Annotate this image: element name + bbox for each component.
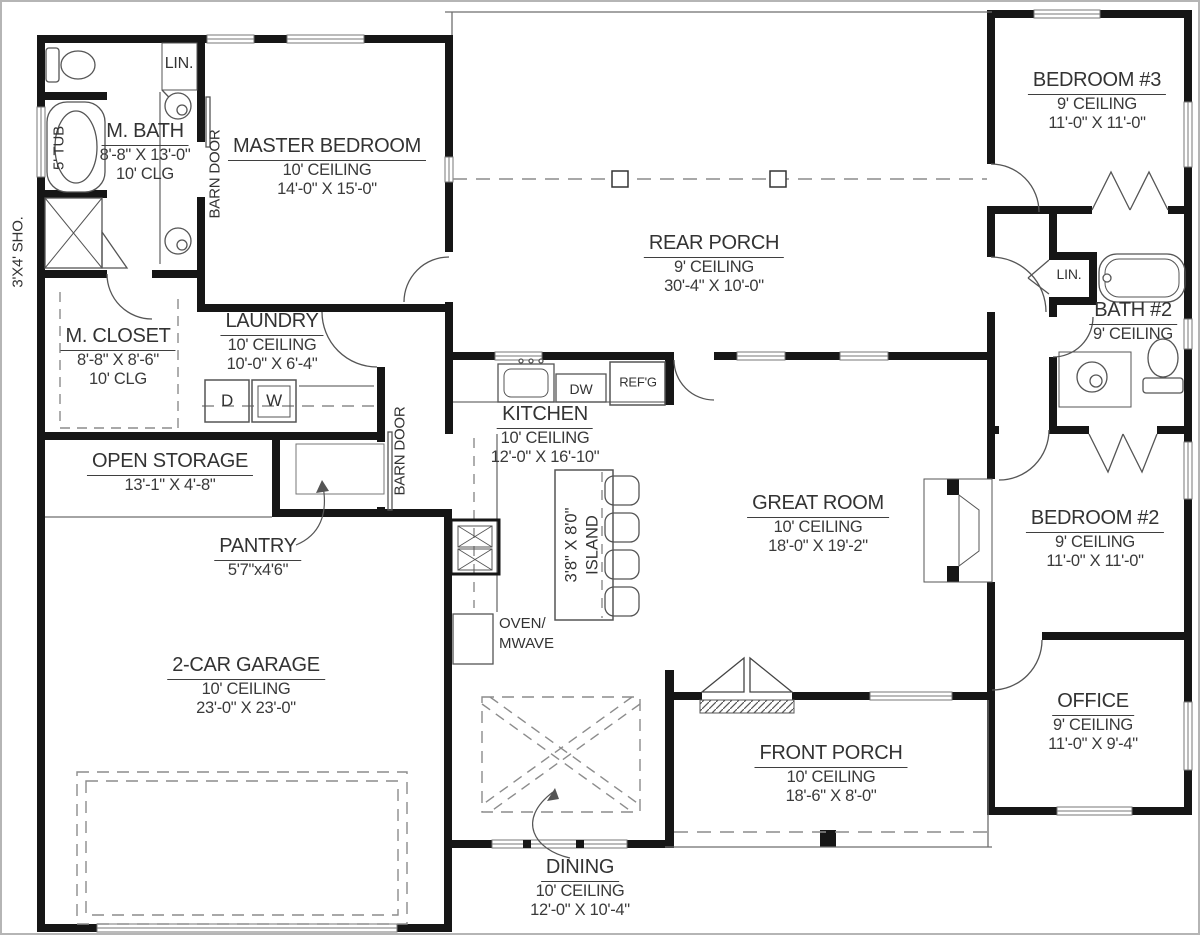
shower-label: 3'X4' SHO. <box>10 216 27 287</box>
island-label: 3'8" X 8'0" ISLAND <box>561 508 602 583</box>
room-name: GREAT ROOM <box>747 492 889 518</box>
room-name: OPEN STORAGE <box>87 450 253 476</box>
room-name: DINING <box>530 856 630 882</box>
room-label-rear-porch: REAR PORCH 9' CEILING 30'-4" X 10'-0" <box>644 232 784 297</box>
room-label-front-porch: FRONT PORCH 10' CEILING 18'-6" X 8'-0" <box>755 742 908 807</box>
room-label-master-bedroom: MASTER BEDROOM 10' CEILING 14'-0" X 15'-… <box>228 135 426 200</box>
barn-door-label-pantry: BARN DOOR <box>392 406 409 495</box>
linen-label-master: LIN. <box>165 55 194 73</box>
room-label-bedroom-3: BEDROOM #3 9' CEILING 11'-0" X 11'-0" <box>1028 69 1166 134</box>
room-label-kitchen: KITCHEN 10' CEILING 12'-0" X 16'-10" <box>491 403 600 468</box>
room-name: 2-CAR GARAGE <box>167 654 325 680</box>
room-label-laundry: LAUNDRY 10' CEILING 10'-0" X 6'-4" <box>220 310 323 375</box>
room-label-pantry: PANTRY 5'7"x4'6" <box>214 535 301 580</box>
room-label-great-room: GREAT ROOM 10' CEILING 18'-0" X 19'-2" <box>747 492 889 557</box>
floor-plan: M. BATH 8'-8" X 13'-0" 10' CLG MASTER BE… <box>0 0 1200 935</box>
room-name: MASTER BEDROOM <box>228 135 426 161</box>
room-label-bath-2: BATH #2 9' CEILING <box>1089 299 1177 344</box>
room-label-m-bath: M. BATH 8'-8" X 13'-0" 10' CLG <box>100 120 191 185</box>
dishwasher-label: DW <box>570 381 593 397</box>
leader-lines <box>296 480 570 858</box>
room-name: FRONT PORCH <box>755 742 908 768</box>
room-name: REAR PORCH <box>644 232 784 258</box>
room-label-office: OFFICE 9' CEILING 11'-0" X 9'-4" <box>1048 690 1138 755</box>
linen-label-bath2: LIN. <box>1057 266 1082 282</box>
room-name: BATH #2 <box>1089 299 1177 325</box>
washer-label: W <box>266 391 282 411</box>
tub-label: 5' TUB <box>51 126 68 170</box>
room-label-garage: 2-CAR GARAGE 10' CEILING 23'-0" X 23'-0" <box>167 654 325 719</box>
room-label-bedroom-2: BEDROOM #2 9' CEILING 11'-0" X 11'-0" <box>1026 507 1164 572</box>
room-name: M. BATH <box>100 120 191 146</box>
room-name: BEDROOM #2 <box>1026 507 1164 533</box>
front-door <box>700 658 794 713</box>
room-label-m-closet: M. CLOSET 8'-8" X 8'-6" 10' CLG <box>60 325 175 390</box>
room-name: PANTRY <box>214 535 301 561</box>
dryer-label: D <box>221 391 233 411</box>
oven-mwave-label: OVEN/ MWAVE <box>499 614 554 655</box>
room-name: KITCHEN <box>491 403 600 429</box>
room-name: BEDROOM #3 <box>1028 69 1166 95</box>
room-label-open-storage: OPEN STORAGE 13'-1" X 4'-8" <box>87 450 253 495</box>
room-name: OFFICE <box>1048 690 1138 716</box>
fridge-label: REF'G <box>619 375 657 390</box>
barn-door-label-master: BARN DOOR <box>207 129 224 218</box>
room-name: LAUNDRY <box>220 310 323 336</box>
room-label-dining: DINING 10' CEILING 12'-0" X 10'-4" <box>530 856 630 921</box>
room-name: M. CLOSET <box>60 325 175 351</box>
